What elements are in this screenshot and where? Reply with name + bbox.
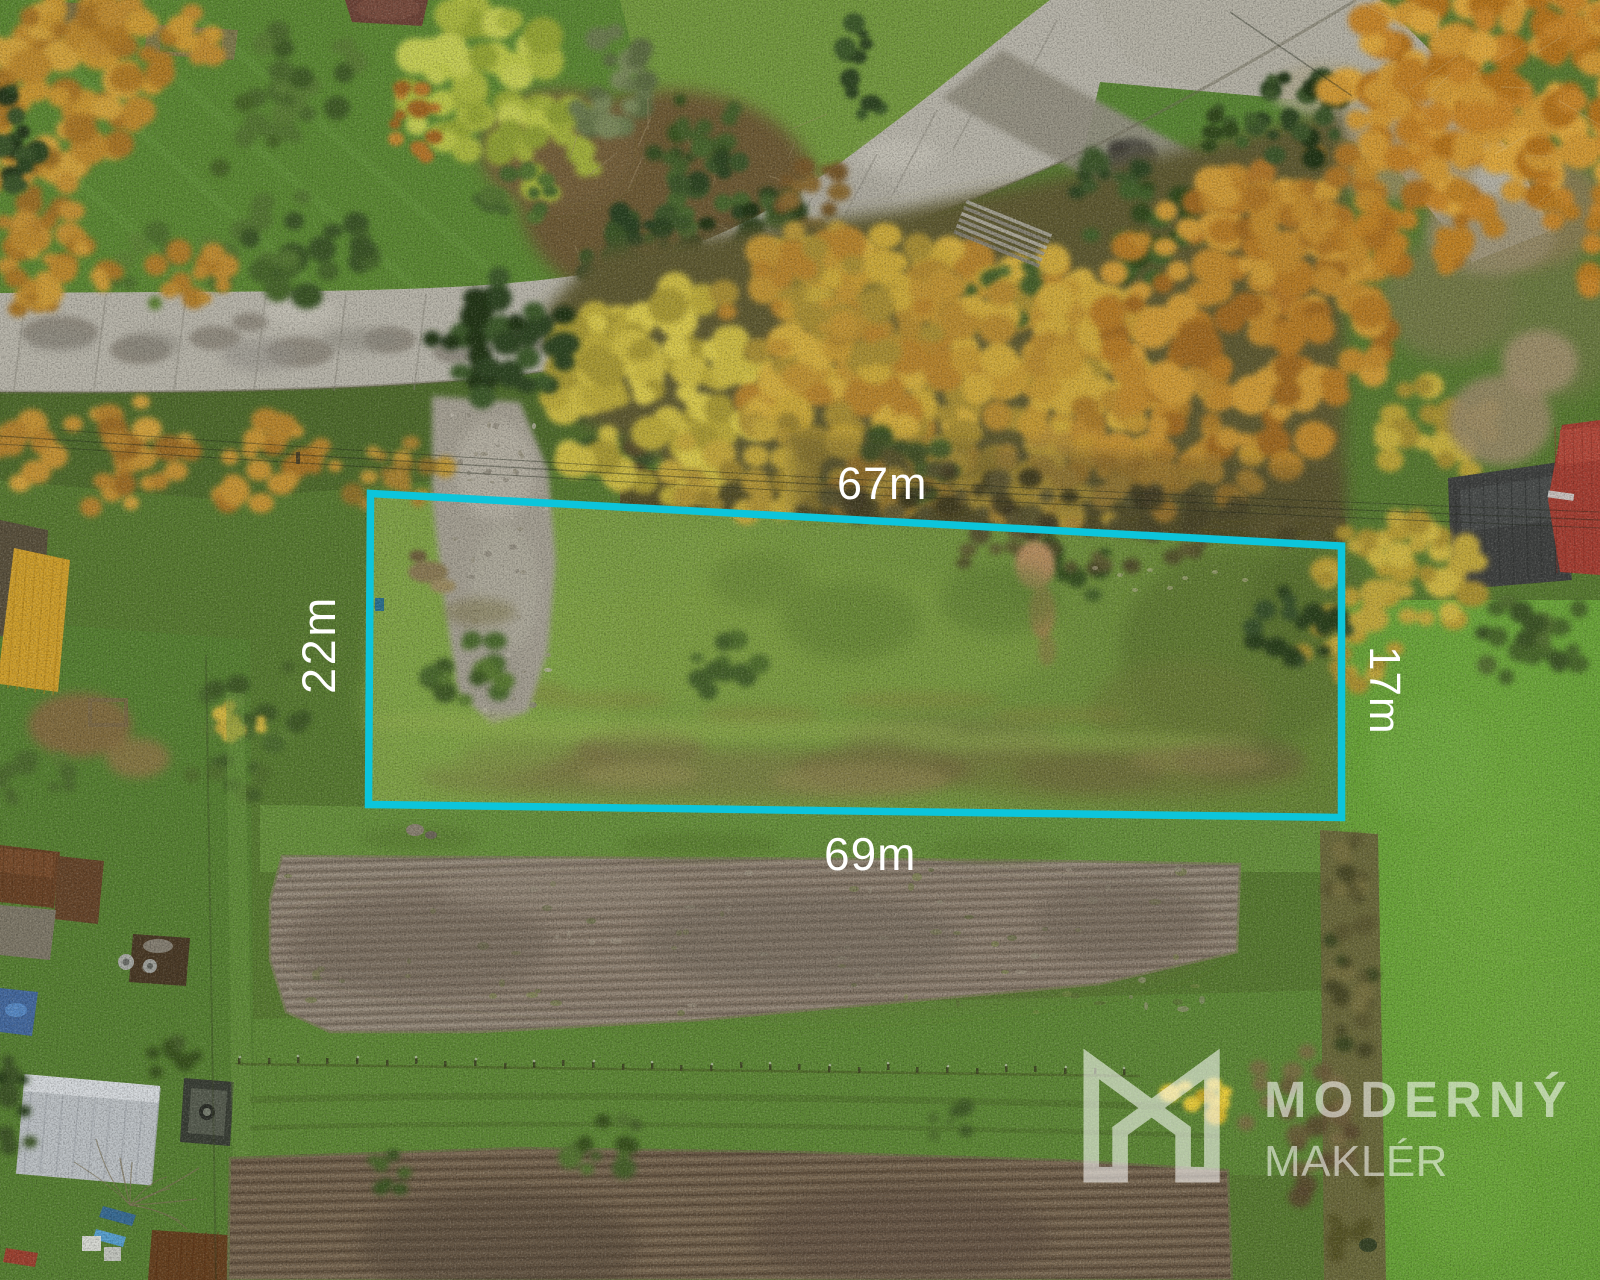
svg-text:MODERNÝ: MODERNÝ <box>1264 1070 1574 1128</box>
svg-text:MAKLÉR: MAKLÉR <box>1264 1137 1448 1186</box>
svg-text:22m: 22m <box>292 595 345 694</box>
svg-text:67m: 67m <box>837 458 928 509</box>
svg-text:69m: 69m <box>824 828 916 880</box>
svg-text:17m: 17m <box>1360 646 1409 735</box>
